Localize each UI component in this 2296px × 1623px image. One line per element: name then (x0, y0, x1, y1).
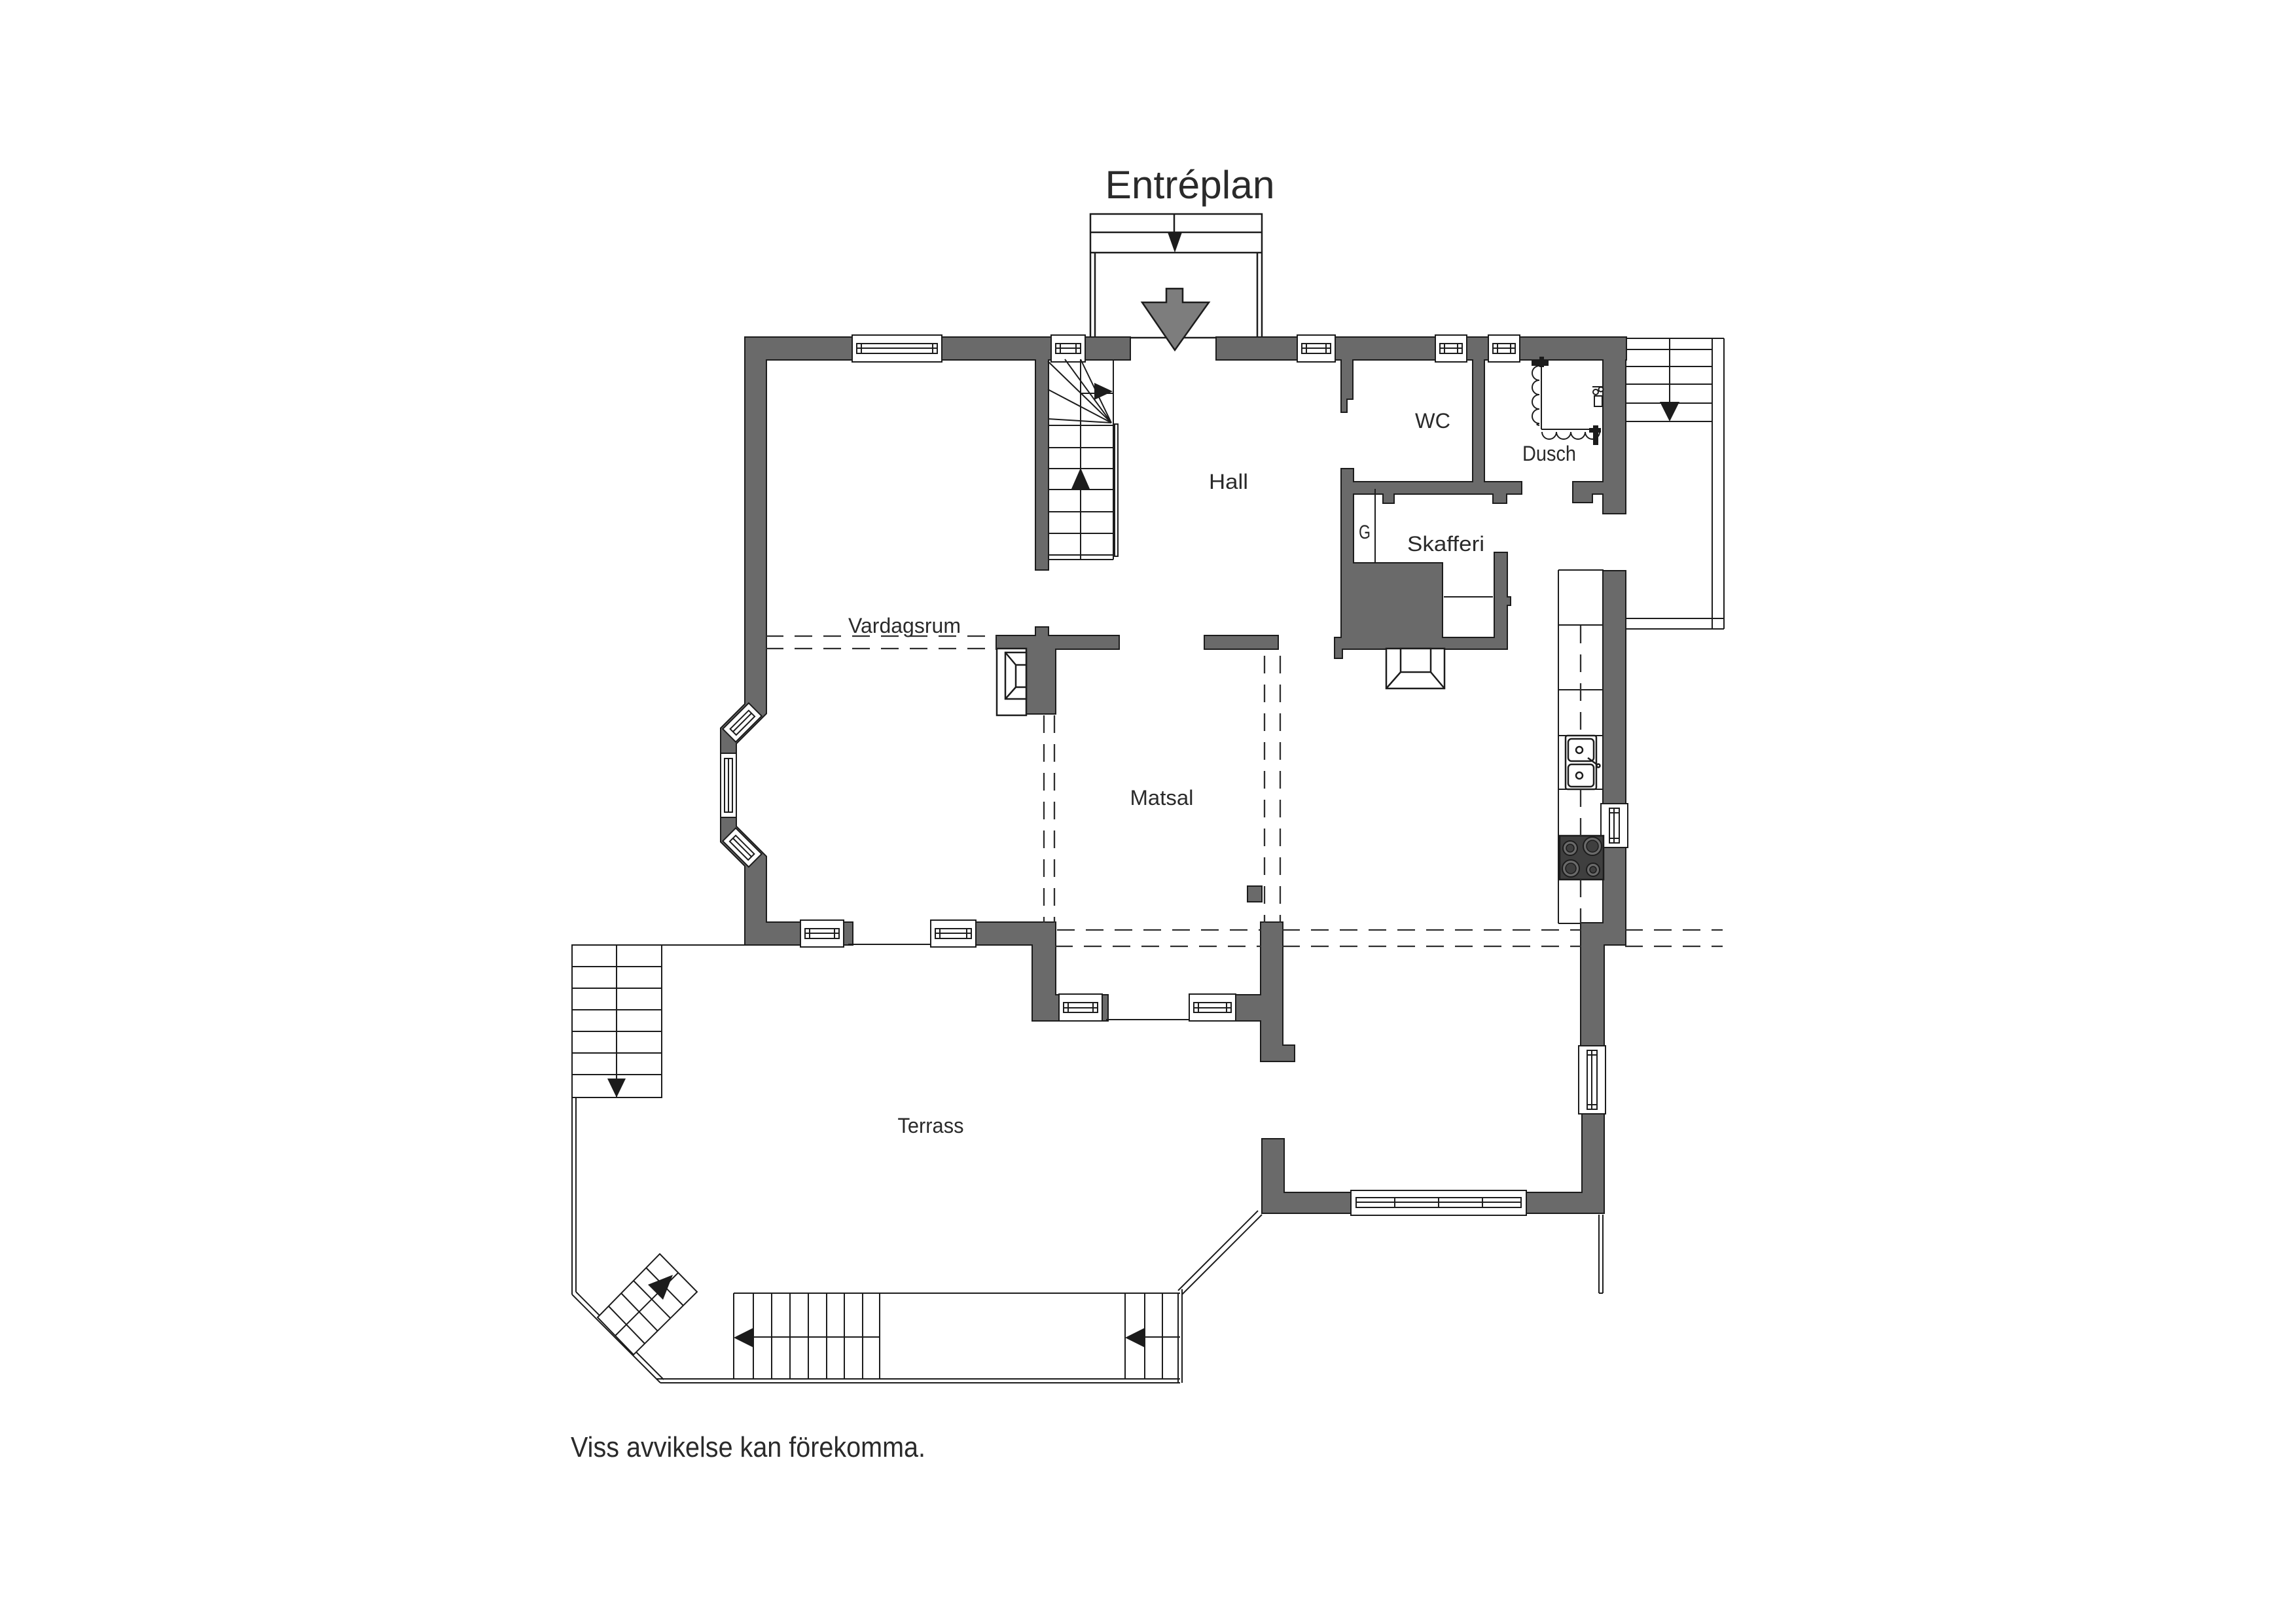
svg-text:Vardagsrum: Vardagsrum (848, 614, 961, 637)
svg-text:G: G (1359, 522, 1371, 543)
svg-text:Terrass: Terrass (898, 1114, 964, 1137)
svg-text:Skafferi: Skafferi (1407, 532, 1484, 556)
svg-text:WC: WC (1415, 409, 1450, 433)
svg-text:Matsal: Matsal (1130, 786, 1194, 810)
svg-text:Viss avvikelse kan förekomma.: Viss avvikelse kan förekomma. (571, 1431, 925, 1463)
svg-text:Dusch: Dusch (1522, 442, 1576, 465)
svg-text:Hall: Hall (1209, 470, 1248, 493)
svg-text:Entréplan: Entréplan (1105, 163, 1275, 207)
